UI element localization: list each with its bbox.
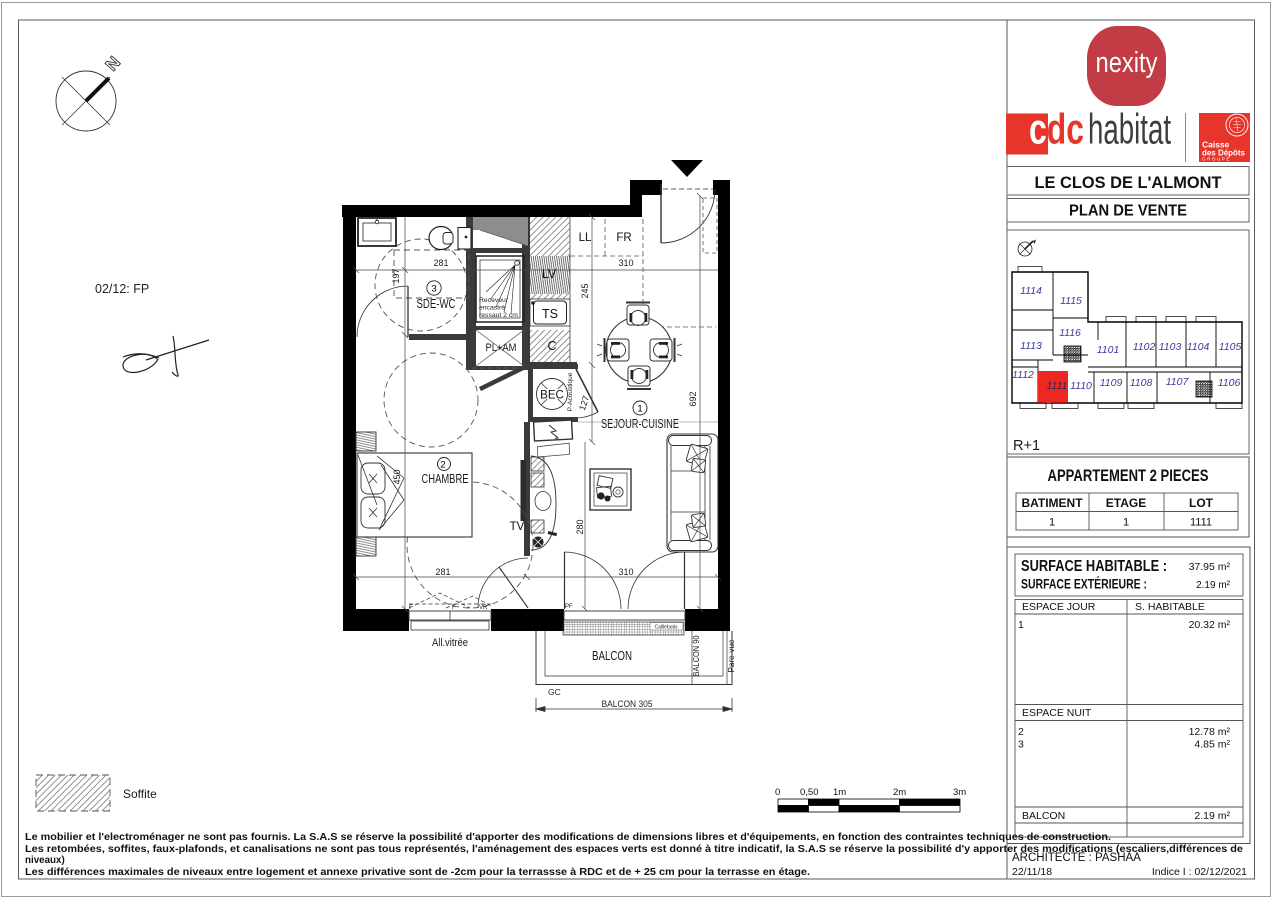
svg-text:F: F [452, 605, 456, 611]
svg-text:LE CLOS DE L'ALMONT: LE CLOS DE L'ALMONT [1035, 173, 1223, 192]
svg-text:1: 1 [1018, 619, 1024, 631]
svg-text:2m: 2m [893, 787, 906, 798]
svg-text:280: 280 [575, 519, 585, 534]
svg-text:1111: 1111 [1190, 517, 1212, 529]
svg-text:SEJOUR-CUISINE: SEJOUR-CUISINE [601, 417, 679, 431]
svg-text:ESPACE NUIT: ESPACE NUIT [1022, 707, 1092, 719]
svg-text:1108: 1108 [1130, 377, 1153, 389]
svg-text:0: 0 [775, 787, 780, 798]
svg-text:ESPACE JOUR: ESPACE JOUR [1022, 601, 1096, 613]
svg-text:1112: 1112 [1012, 369, 1034, 381]
svg-text:PLAN DE VENTE: PLAN DE VENTE [1069, 203, 1187, 220]
svg-text:3: 3 [1018, 739, 1024, 751]
svg-text:1104: 1104 [1187, 341, 1210, 353]
svg-text:37.95 m²: 37.95 m² [1189, 561, 1231, 573]
svg-text:FR: FR [616, 232, 631, 244]
svg-text:Le mobilier et l'electroménage: Le mobilier et l'electroménager ne sont … [25, 832, 1111, 843]
svg-text:R+1: R+1 [1013, 438, 1040, 454]
svg-text:1106: 1106 [1218, 377, 1241, 389]
svg-text:LOT: LOT [1189, 496, 1214, 510]
svg-text:All.vitrée: All.vitrée [432, 637, 468, 649]
svg-text:GROUPE: GROUPE [1202, 157, 1231, 162]
svg-text:SDE-WC: SDE-WC [417, 297, 456, 311]
svg-text:P-Acoustique: P-Acoustique [567, 372, 574, 411]
svg-text:1m: 1m [833, 787, 846, 798]
svg-text:1114: 1114 [1020, 285, 1042, 297]
svg-text:BEC: BEC [540, 390, 564, 402]
svg-text:02/12: FP: 02/12: FP [95, 282, 149, 296]
svg-text:310: 310 [618, 258, 633, 268]
svg-text:GC: GC [548, 687, 561, 697]
svg-text:BATIMENT: BATIMENT [1021, 496, 1083, 510]
svg-text:1103: 1103 [1159, 341, 1182, 353]
svg-text:1110: 1110 [1070, 380, 1092, 392]
svg-text:Indice I : 02/12/2021: Indice I : 02/12/2021 [1152, 866, 1247, 878]
svg-text:1101: 1101 [1097, 344, 1120, 356]
svg-text:LL: LL [579, 232, 592, 244]
svg-text:2.19 m²: 2.19 m² [1194, 810, 1230, 822]
svg-text:2: 2 [440, 460, 445, 471]
svg-text:Les différences maximales de n: Les différences maximales de niveaux ent… [25, 867, 810, 878]
svg-text:3m: 3m [953, 787, 966, 798]
svg-text:BALCON 90: BALCON 90 [692, 635, 701, 677]
svg-text:1: 1 [637, 404, 642, 415]
svg-text:S. HABITABLE: S. HABITABLE [1135, 601, 1205, 613]
svg-text:niveaux): niveaux) [25, 855, 65, 866]
svg-text:450: 450 [392, 469, 402, 484]
svg-text:SURFACE EXTÉRIEURE :: SURFACE EXTÉRIEURE : [1021, 577, 1147, 592]
svg-text:ressaut 2 cm: ressaut 2 cm [479, 312, 518, 319]
svg-text:BALCON: BALCON [1022, 810, 1065, 822]
svg-text:ETAGE: ETAGE [1106, 496, 1146, 510]
svg-text:Les retombées, soffites, faux-: Les retombées, soffites, faux-plafonds, … [25, 844, 1244, 855]
svg-text:LV: LV [542, 267, 557, 281]
svg-text:2: 2 [1018, 726, 1024, 738]
svg-text:SURFACE HABITABLE :: SURFACE HABITABLE : [1021, 558, 1167, 575]
svg-text:1105: 1105 [1219, 341, 1242, 353]
svg-text:281: 281 [435, 567, 450, 577]
svg-text:PF: PF [565, 604, 573, 610]
svg-text:F: F [409, 605, 413, 611]
svg-text:Soffite: Soffite [123, 787, 157, 801]
svg-text:VR: VR [479, 605, 488, 611]
svg-text:245: 245 [580, 283, 590, 298]
svg-text:281: 281 [433, 258, 448, 268]
svg-text:TV: TV [510, 521, 525, 533]
svg-text:692: 692 [688, 391, 698, 406]
svg-text:1107: 1107 [1166, 376, 1190, 388]
svg-text:310: 310 [618, 567, 633, 577]
svg-text:22/11/18: 22/11/18 [1012, 866, 1052, 878]
svg-text:Receveur: Receveur [479, 297, 509, 304]
svg-text:3: 3 [431, 284, 436, 295]
svg-text:1102: 1102 [1133, 341, 1156, 353]
svg-text:1113: 1113 [1020, 340, 1042, 352]
svg-text:PL+AM: PL+AM [486, 342, 517, 354]
svg-text:1: 1 [1049, 517, 1055, 529]
svg-text:4.85 m²: 4.85 m² [1194, 739, 1230, 751]
svg-text:12.78 m²: 12.78 m² [1189, 726, 1231, 738]
svg-text:C: C [547, 339, 556, 353]
svg-text:197: 197 [391, 268, 401, 283]
svg-text:1111: 1111 [1046, 380, 1067, 392]
svg-text:APPARTEMENT 2 PIECES: APPARTEMENT 2 PIECES [1048, 467, 1209, 485]
svg-text:TS: TS [542, 307, 558, 321]
svg-text:BALCON 305: BALCON 305 [602, 699, 653, 709]
svg-text:Caillebotis: Caillebotis [654, 625, 678, 631]
svg-text:1: 1 [1123, 517, 1129, 529]
svg-text:Pare-vue: Pare-vue [727, 639, 736, 673]
svg-text:nexity: nexity [1096, 47, 1158, 79]
svg-text:2.19 m²: 2.19 m² [1196, 580, 1231, 591]
svg-text:habitat: habitat [1088, 106, 1171, 154]
svg-text:1115: 1115 [1060, 295, 1082, 307]
svg-text:CHAMBRE: CHAMBRE [422, 472, 469, 486]
svg-text:1116: 1116 [1059, 327, 1081, 339]
svg-text:0,50: 0,50 [800, 787, 819, 798]
svg-text:1109: 1109 [1100, 377, 1123, 389]
svg-text:encastré: encastré [479, 305, 505, 312]
svg-text:BALCON: BALCON [592, 649, 632, 663]
svg-text:20.32 m²: 20.32 m² [1189, 619, 1231, 631]
